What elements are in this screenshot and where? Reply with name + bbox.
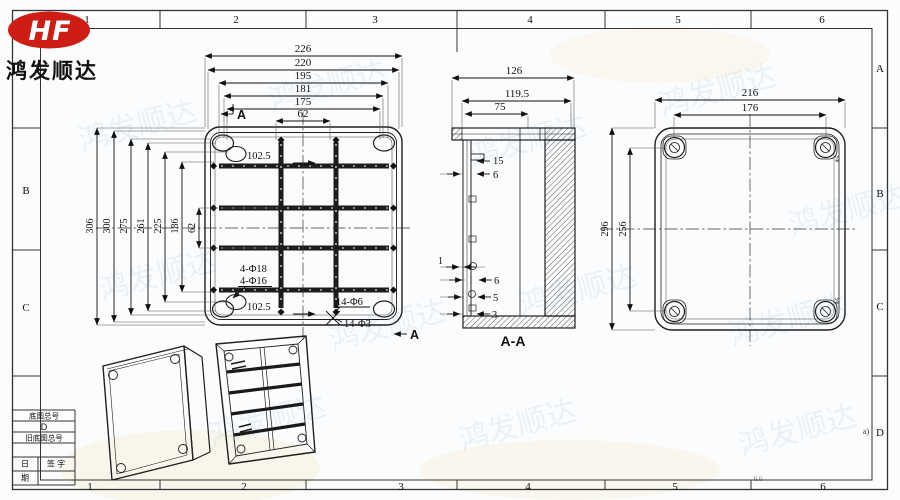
front-dim-186: 186 (170, 219, 181, 234)
front-dim-306: 306 (85, 219, 96, 234)
grid-col-label: 5 (675, 14, 681, 26)
section-dim-75: 75 (495, 101, 507, 113)
grid-col-label: 2 (241, 481, 247, 493)
watermark-text: 鸿发顺达 (265, 54, 389, 117)
grid-col-label: 5 (672, 481, 678, 493)
back-corner-note: Φ5 (835, 297, 841, 304)
company-logo: HF 鸿发顺达 (6, 12, 98, 84)
drawing-canvas: 鸿发顺达 鸿发顺达 鸿发顺达 鸿发顺达 鸿发顺达 鸿发顺达 鸿发顺达 鸿发顺达 … (0, 0, 900, 500)
section-dim-6: 6 (494, 276, 499, 287)
front-dim-62v: 62 (187, 223, 198, 233)
section-dim-126: 126 (506, 65, 523, 77)
watermark-text: 鸿发顺达 (515, 259, 639, 322)
grid-col-label: 6 (820, 481, 826, 493)
watermark-text: 鸿发顺达 (735, 399, 859, 462)
grid-col-label: 3 (372, 14, 378, 26)
title-block-date-top: 日 (21, 460, 29, 469)
grid-col-label: 4 (527, 14, 533, 26)
company-name: 鸿发顺达 (6, 59, 98, 83)
grid-row-label: C (876, 301, 883, 313)
section-dim-1: 1 (438, 256, 443, 267)
front-holes-large2: 4-Φ16 (240, 276, 267, 287)
front-dim-62: 62 (298, 108, 309, 120)
section-marker-top: A (237, 108, 246, 122)
section-dim-1195: 119.5 (505, 88, 530, 100)
section-marker-bottom: A (410, 328, 419, 342)
page-note: a) (863, 427, 870, 436)
front-dim-226: 226 (295, 43, 312, 55)
watermark-text: 鸿发顺达 (75, 94, 199, 157)
front-offset-bottom: 102.5 (247, 302, 271, 313)
front-dim-181: 181 (295, 83, 312, 95)
title-block-date-bottom: 期 (21, 474, 29, 483)
section-dim-5: 5 (493, 293, 498, 304)
grid-col-label: 2 (233, 14, 239, 26)
back-dim-216: 216 (742, 87, 759, 99)
grid-col-label: 1 (87, 481, 93, 493)
back-dim-256: 256 (618, 222, 629, 237)
stray-mark: 6.6 (754, 475, 763, 483)
front-dim-300: 300 (102, 219, 113, 234)
front-dim-275: 275 (119, 219, 130, 234)
front-dim-175: 175 (295, 96, 312, 108)
grid-col-label: 6 (819, 14, 825, 26)
front-dim-225: 225 (153, 219, 164, 234)
section-label: A-A (501, 333, 526, 349)
drawing-sheet: 鸿发顺达 鸿发顺达 鸿发顺达 鸿发顺达 鸿发顺达 鸿发顺达 鸿发顺达 鸿发顺达 … (0, 0, 900, 500)
section-dim-15: 15 (493, 156, 504, 167)
logo-monogram: HF (28, 16, 71, 47)
front-dim-261: 261 (136, 219, 147, 234)
front-holes-large: 4-Φ18 (240, 264, 267, 275)
grid-col-label: 4 (525, 481, 531, 493)
section-dim-6top: 6 (493, 170, 498, 181)
title-block-drawing-letter: D (41, 422, 48, 432)
title-block-old-base-no-label: 旧底图总号 (25, 433, 63, 443)
back-corner-note: Φ5 (835, 155, 841, 162)
front-holes-small2: 14-Φ3 (344, 319, 371, 330)
grid-row-label: A (876, 63, 884, 75)
back-dim-176: 176 (742, 102, 759, 114)
front-dim-195: 195 (295, 70, 312, 82)
grid-col-label: 3 (398, 481, 404, 493)
title-block-base-no-label: 底图总号 (29, 411, 59, 421)
back-dim-296: 296 (600, 222, 611, 237)
grid-row-label: D (876, 427, 884, 439)
section-dim-3: 3 (492, 310, 497, 321)
front-holes-small: 14-Φ6 (336, 297, 363, 308)
title-block-sign-label: 签 字 (47, 459, 65, 469)
grid-row-label: B (876, 188, 883, 200)
grid-row-label: C (22, 302, 29, 314)
front-dim-220: 220 (295, 57, 312, 69)
front-offset-top: 102.5 (247, 151, 271, 162)
grid-row-label: B (22, 185, 29, 197)
section-view: 126 119.5 75 15 6 1 6 5 3 A-A (438, 65, 575, 349)
watermark-text: 鸿发顺达 (725, 289, 849, 352)
watermark-layer: 鸿发顺达 鸿发顺达 鸿发顺达 鸿发顺达 鸿发顺达 鸿发顺达 鸿发顺达 鸿发顺达 … (60, 27, 900, 500)
